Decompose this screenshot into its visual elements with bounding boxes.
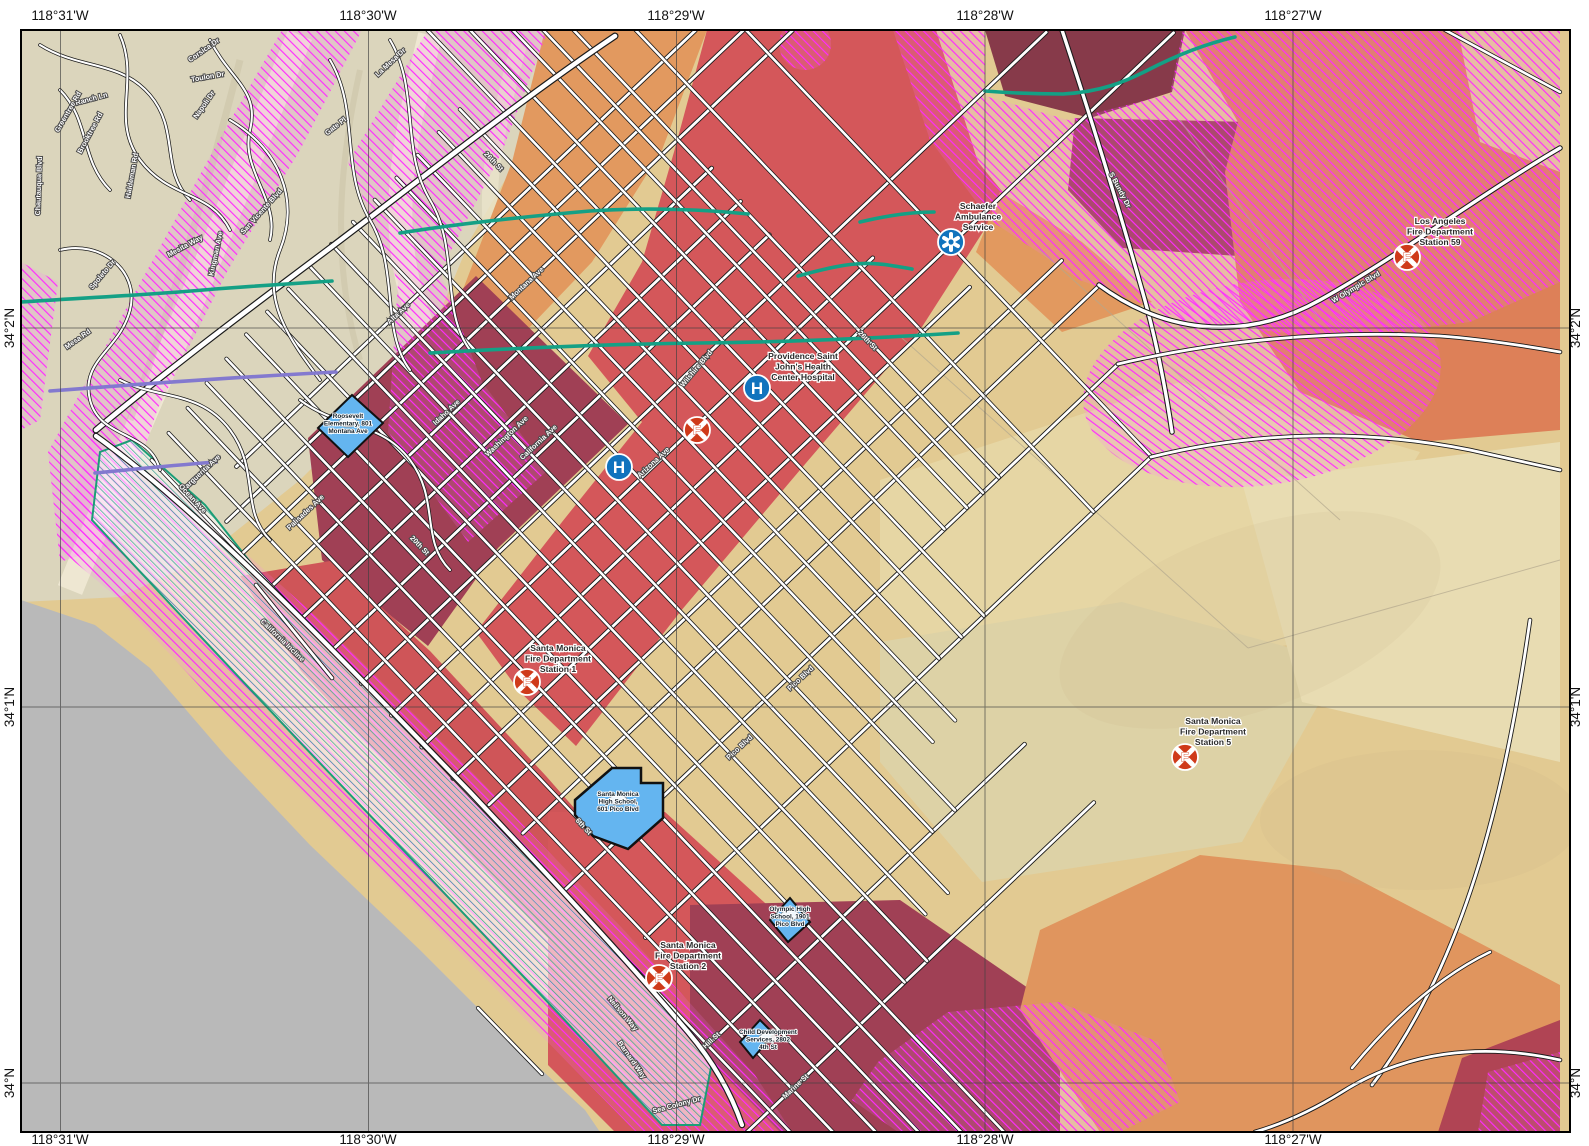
fire-icon[interactable]: F [514,669,540,695]
map-canvas[interactable]: Corsica DrToulon DrNapoli DrRanch LnGree… [0,0,1589,1146]
school-label: Elementary, 801 [324,421,373,428]
poi-label: Schaefer [960,201,997,211]
school-label: Child Development [739,1029,798,1036]
school-label: Roosevelt [333,413,364,420]
poi-label: Providence Saint [768,351,838,361]
svg-text:F: F [1403,251,1411,265]
school-label: Santa Monica [597,791,639,798]
svg-text:F: F [693,424,701,438]
school-label: High School, [598,799,637,806]
axis-label-lat-right: 34°N [1568,1068,1583,1098]
ambulance-icon[interactable] [938,229,964,255]
fire-icon[interactable]: F [646,965,672,991]
axis-label-lon-top: 118°29'W [647,8,705,23]
school-label: School, 1901 [770,914,810,921]
fire-icon[interactable]: F [1394,244,1420,270]
hospital-icon[interactable]: H [606,454,632,480]
axis-label-lat-right: 34°2'N [1568,308,1583,348]
svg-text:F: F [523,676,531,690]
hospital-icon[interactable]: H [744,375,770,401]
axis-label-lat-left: 34°N [2,1068,17,1098]
school-label: 4th St [759,1044,778,1051]
axis-label-lon-bottom: 118°27'W [1264,1132,1322,1146]
poi-label: Center Hospital [771,372,835,382]
school-label: Pico Blvd [775,921,804,928]
axis-label-lat-right: 34°1'N [1568,687,1583,727]
svg-text:F: F [1181,751,1189,765]
poi-label: Service [963,222,994,232]
fire-icon[interactable]: F [684,417,710,443]
svg-text:F: F [655,972,663,986]
school-label: 601 Pico Blvd [597,806,639,813]
fire-icon[interactable]: F [1172,744,1198,770]
poi-label: Los Angeles [1415,216,1466,226]
map-layers: Corsica DrToulon DrNapoli DrRanch LnGree… [21,18,1580,1137]
axis-label-lon-top: 118°31'W [31,8,89,23]
school-label: Olympic High [769,906,810,913]
axis-label-lon-top: 118°30'W [339,8,397,23]
poi-label: Ambulance [955,211,1002,221]
poi-label: Fire Department [525,653,591,663]
axis-label-lon-bottom: 118°28'W [956,1132,1014,1146]
poi-label: Station 1 [540,664,577,674]
poi-label: Santa Monica [530,643,586,653]
axis-label-lon-top: 118°28'W [956,8,1014,23]
poi-label: Fire Department [1407,226,1473,236]
hazard-map-page: Corsica DrToulon DrNapoli DrRanch LnGree… [0,0,1589,1146]
poi-label: Fire Department [1180,726,1246,736]
poi-label: Santa Monica [660,940,716,950]
school-label: Services, 2802 [746,1037,791,1044]
poi-label: Station 2 [670,961,707,971]
axis-label-lon-bottom: 118°29'W [647,1132,705,1146]
svg-text:H: H [613,458,625,477]
axis-label-lat-left: 34°1'N [2,687,17,727]
poi-label: Station 59 [1419,237,1460,247]
poi-label: John's Health [775,361,831,371]
school-label: Montana Ave [328,428,368,435]
poi-label: Santa Monica [1185,716,1241,726]
axis-label-lon-bottom: 118°30'W [339,1132,397,1146]
axis-label-lon-bottom: 118°31'W [31,1132,89,1146]
axis-label-lon-top: 118°27'W [1264,8,1322,23]
poi-label: Fire Department [655,950,721,960]
axis-label-lat-left: 34°2'N [2,308,17,348]
poi-label: Station 5 [1195,737,1232,747]
svg-text:H: H [751,379,763,398]
